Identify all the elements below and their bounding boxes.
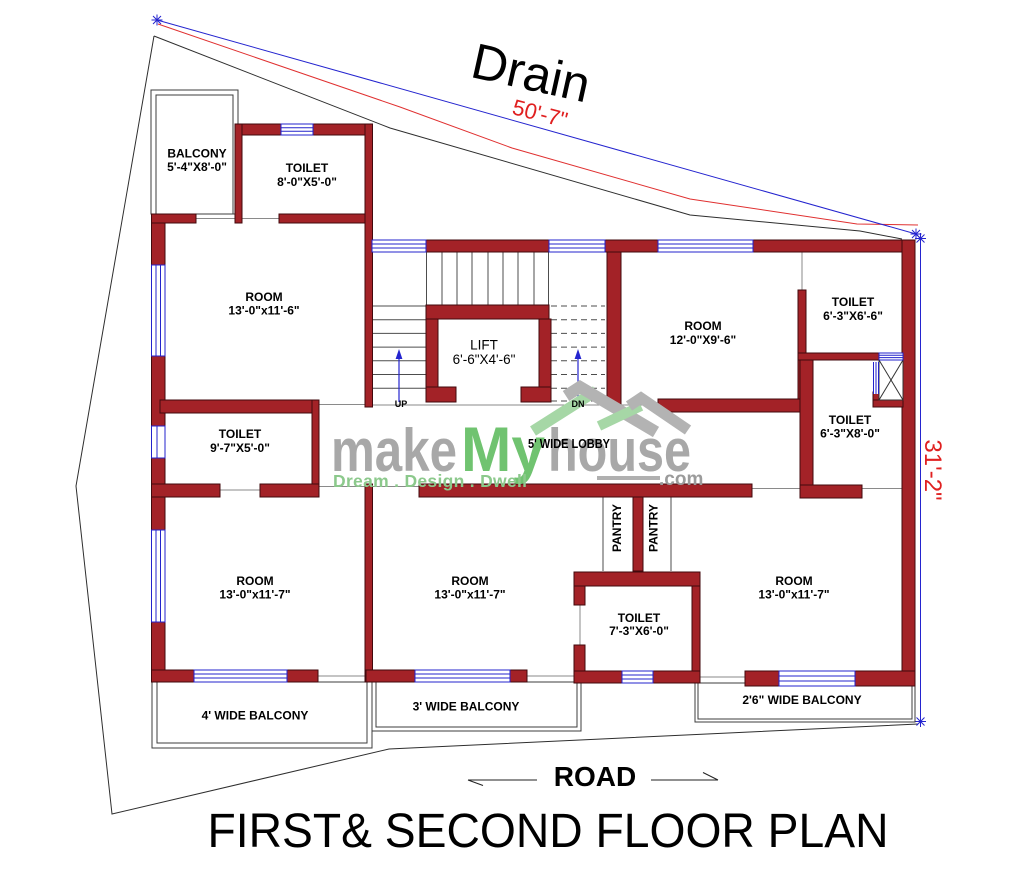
svg-text:Dream . Design . Dwell: Dream . Design . Dwell <box>333 471 527 491</box>
svg-text:13'-0"x11'-6": 13'-0"x11'-6" <box>228 304 299 318</box>
svg-text:PANTRY: PANTRY <box>647 504 661 552</box>
svg-text:12'-0"X9'-6": 12'-0"X9'-6" <box>670 333 736 347</box>
svg-text:TOILET: TOILET <box>286 161 329 175</box>
svg-text:UP: UP <box>395 399 408 409</box>
svg-text:TOILET: TOILET <box>832 295 875 309</box>
svg-text:TOILET: TOILET <box>219 427 262 441</box>
svg-text:9'-7"X5'-0": 9'-7"X5'-0" <box>210 441 270 455</box>
svg-text:LIFT: LIFT <box>470 338 498 353</box>
svg-text:4' WIDE BALCONY: 4' WIDE BALCONY <box>202 709 309 723</box>
svg-text:13'-0"x11'-7": 13'-0"x11'-7" <box>219 588 290 602</box>
svg-text:5' WIDE LOBBY: 5' WIDE LOBBY <box>528 437 611 451</box>
svg-text:5'-4"X8'-0": 5'-4"X8'-0" <box>167 160 227 174</box>
svg-text:TOILET: TOILET <box>829 413 872 427</box>
svg-text:6'-3"X8'-0": 6'-3"X8'-0" <box>820 427 880 441</box>
svg-text:ROOM: ROOM <box>236 574 273 588</box>
svg-text:DN: DN <box>572 399 585 409</box>
svg-text:TOILET: TOILET <box>618 611 661 625</box>
svg-text:.com: .com <box>659 469 703 490</box>
svg-text:ROOM: ROOM <box>775 574 812 588</box>
svg-text:2'6" WIDE BALCONY: 2'6" WIDE BALCONY <box>742 693 861 707</box>
svg-text:7'-3"X6'-0": 7'-3"X6'-0" <box>609 624 669 638</box>
svg-text:31'-2": 31'-2" <box>919 439 946 500</box>
svg-text:ROOM: ROOM <box>451 574 488 588</box>
svg-text:13'-0"x11'-7": 13'-0"x11'-7" <box>758 588 829 602</box>
svg-text:ROAD: ROAD <box>554 761 636 792</box>
svg-text:ROOM: ROOM <box>684 319 721 333</box>
svg-text:ROOM: ROOM <box>245 290 282 304</box>
svg-text:PANTRY: PANTRY <box>610 504 624 552</box>
svg-text:BALCONY: BALCONY <box>167 147 226 161</box>
svg-text:6'-3"X6'-6": 6'-3"X6'-6" <box>823 309 883 323</box>
svg-text:8'-0"X5'-0": 8'-0"X5'-0" <box>277 175 337 189</box>
svg-text:13'-0"x11'-7": 13'-0"x11'-7" <box>434 588 505 602</box>
svg-text:FIRST& SECOND FLOOR PLAN: FIRST& SECOND FLOOR PLAN <box>208 805 889 858</box>
svg-text:3' WIDE BALCONY: 3' WIDE BALCONY <box>413 700 520 714</box>
svg-text:6'-6"X4'-6": 6'-6"X4'-6" <box>453 352 516 367</box>
